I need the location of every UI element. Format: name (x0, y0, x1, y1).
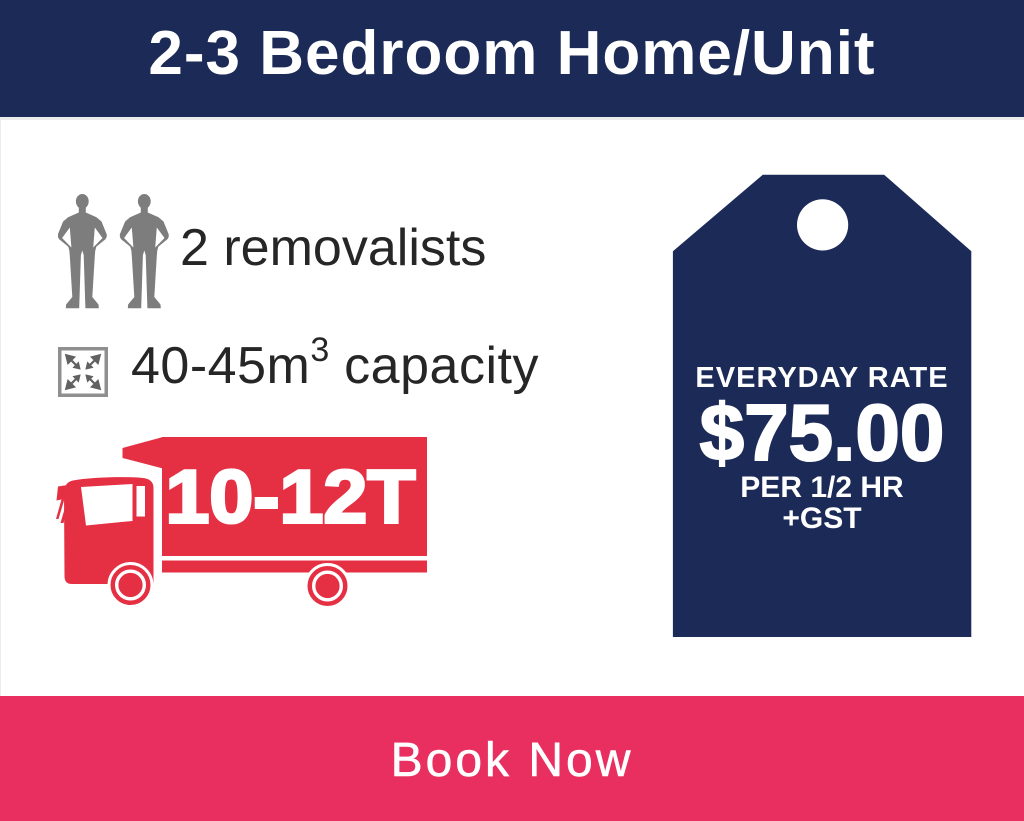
svg-text:10-12T: 10-12T (166, 455, 416, 539)
